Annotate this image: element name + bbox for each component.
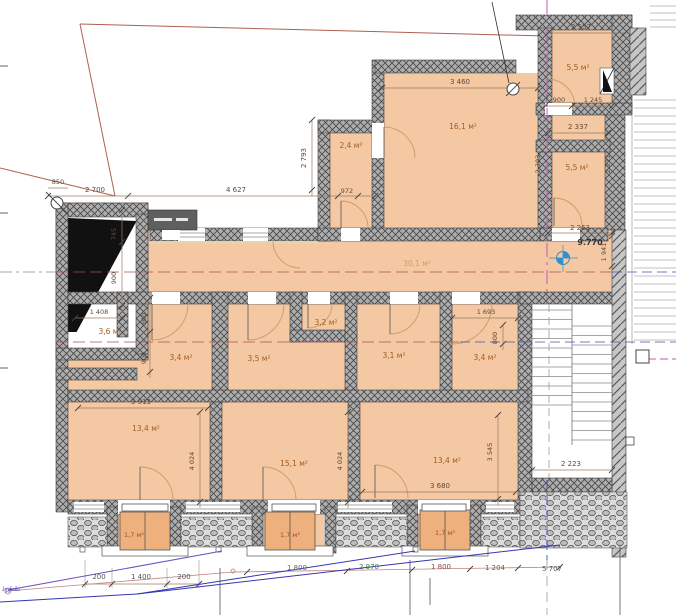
dim-4024b: 4 024 [336, 452, 344, 471]
dim-1800b: 1 800 [431, 563, 451, 571]
dim-900a: 900 [553, 96, 565, 104]
bottom-dim-line [8, 567, 560, 591]
dim-2223: 2 223 [561, 460, 581, 468]
dim-3460: 3 460 [450, 78, 470, 86]
floor-plan-canvas: 5,5 м² 5,5 м² 16,1 м² 2,4 м² 30,1 м² 3,6… [0, 0, 676, 615]
window-sill-strip [150, 241, 318, 244]
room-label-134b: 13,4 м² [433, 456, 461, 465]
dim-900b: 900 [110, 272, 118, 284]
dim-3913: 3 913 [131, 398, 151, 406]
dim-2970: 2 970 [359, 563, 379, 571]
dim-745: 745 [110, 228, 118, 240]
dim-800b: 800 [491, 332, 499, 344]
dim-3680: 3 680 [430, 482, 450, 490]
room-label-36: 3,6 м² [99, 327, 122, 336]
dim-2793: 2 793 [300, 148, 308, 168]
dim-2557: 2 557 [571, 23, 591, 31]
dim-200b: 200 [177, 573, 190, 581]
room-label-301: 30,1 м² [403, 259, 431, 268]
dim-2700: 2 700 [85, 186, 105, 194]
dim-1245: 1 245 [584, 96, 603, 104]
dim-2337: 2 337 [568, 123, 588, 131]
axis-square-marker [636, 350, 649, 363]
dim-850: 850 [52, 178, 64, 186]
room-label-55b: 5,5 м² [566, 163, 589, 172]
room-label-34b: 3,4 м² [474, 353, 497, 362]
dim-1204: 1 204 [485, 564, 506, 572]
room-label-151: 15,1 м² [280, 459, 308, 468]
balcony-label-3: 1,7 м² [435, 529, 455, 537]
room-55b-fill [548, 142, 608, 228]
balcony-label-2: 1,7 м² [280, 531, 300, 539]
room-label-161: 16,1 м² [449, 122, 477, 131]
note-label: ჰევნიშა [2, 586, 20, 593]
dim-1800a: 1 800 [287, 564, 307, 572]
dim-5707: 5 707 [542, 565, 562, 573]
dim-2303: 2 303 [534, 155, 542, 174]
dim-1693: 1 693 [477, 308, 496, 316]
balcony-details [102, 504, 488, 556]
dim-4627: 4 627 [226, 186, 246, 194]
room-label-32: 3,2 м² [315, 318, 338, 327]
dim-1408: 1 408 [90, 308, 109, 316]
floor-plan-drawing: 5,5 м² 5,5 м² 16,1 м² 2,4 м² 30,1 м² 3,6… [0, 0, 676, 615]
dim-800a: 800 [140, 313, 148, 325]
dim-1400: 1 400 [131, 573, 151, 581]
balcony-label-1: 1,7 м² [124, 531, 144, 539]
dim-2271: 2 271 [604, 155, 612, 174]
dim-3545: 3 545 [486, 443, 494, 462]
elevation-value: 9.770 [577, 238, 603, 247]
room-label-55a: 5,5 м² [567, 63, 590, 72]
dim-972: 972 [341, 187, 353, 195]
room-label-31: 3,1 м² [383, 351, 406, 360]
room-label-34a: 3,4 м² [170, 353, 193, 362]
room-161-fill [384, 73, 538, 228]
room-label-35: 3,5 м² [248, 354, 271, 363]
dim-200a: 200 [92, 573, 105, 581]
room-label-24: 2,4 м² [340, 141, 363, 150]
dim-4024a: 4 024 [188, 452, 196, 471]
dim-2263: 2 263 [570, 224, 590, 232]
room-label-134a: 13,4 м² [132, 424, 160, 433]
dim-900c: 900 [140, 352, 148, 364]
